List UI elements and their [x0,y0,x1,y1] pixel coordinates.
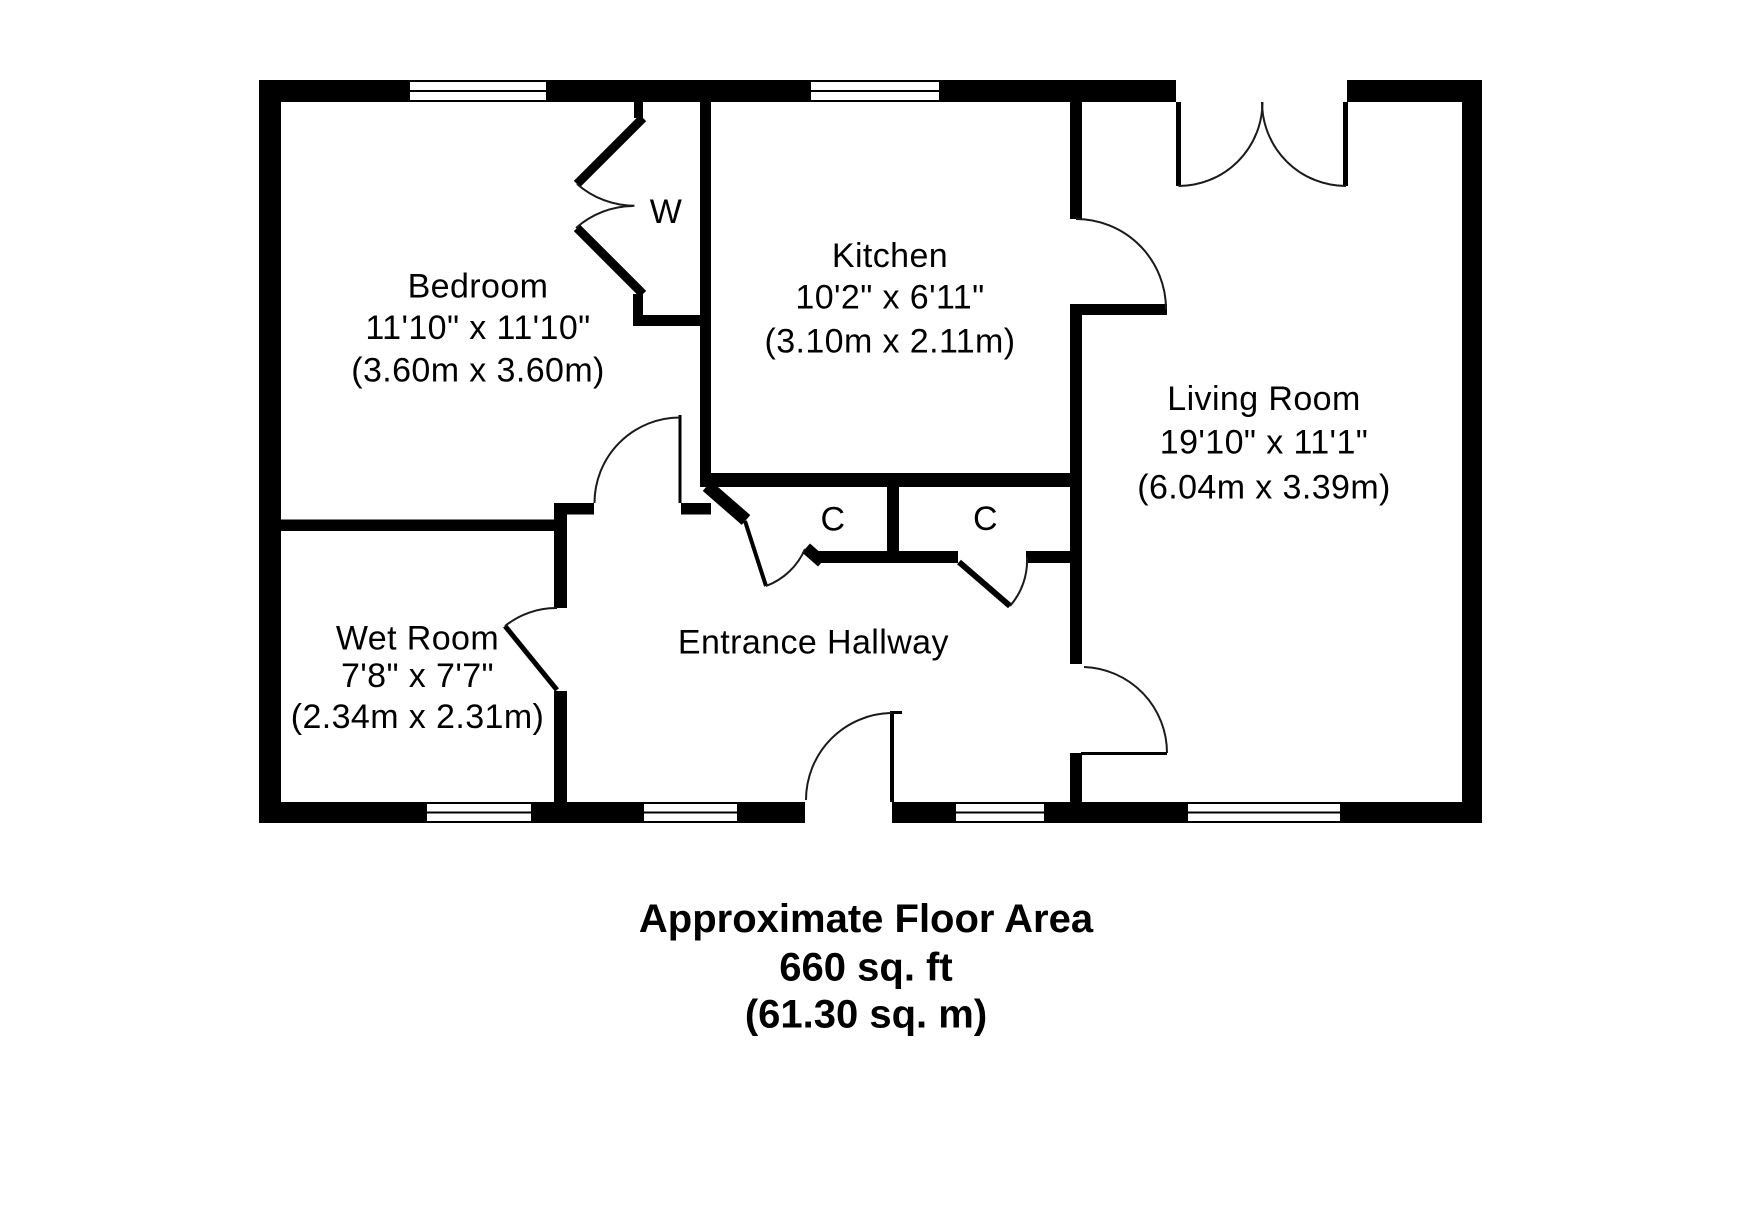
svg-text:(61.30 sq. m): (61.30 sq. m) [745,993,987,1037]
svg-text:Bedroom: Bedroom [408,267,549,305]
svg-text:(3.10m x 2.11m): (3.10m x 2.11m) [764,323,1015,361]
svg-text:W: W [650,193,683,231]
svg-text:7'8" x 7'7": 7'8" x 7'7" [341,657,494,695]
svg-text:(6.04m x 3.39m): (6.04m x 3.39m) [1137,469,1391,507]
svg-text:Approximate Floor Area: Approximate Floor Area [639,897,1094,941]
svg-text:C: C [821,501,846,539]
svg-text:19'10" x 11'1": 19'10" x 11'1" [1160,424,1368,462]
svg-text:11'10" x 11'10": 11'10" x 11'10" [365,309,590,347]
svg-text:Wet Room: Wet Room [336,619,499,657]
svg-text:Living Room: Living Room [1167,380,1360,418]
svg-text:(3.60m x 3.60m): (3.60m x 3.60m) [351,352,605,390]
svg-text:(2.34m x 2.31m): (2.34m x 2.31m) [291,698,545,736]
svg-text:660 sq. ft: 660 sq. ft [779,945,952,989]
svg-text:10'2" x 6'11": 10'2" x 6'11" [795,278,984,316]
svg-text:C: C [973,500,998,538]
svg-text:Kitchen: Kitchen [832,237,948,275]
svg-text:Entrance Hallway: Entrance Hallway [678,624,949,662]
